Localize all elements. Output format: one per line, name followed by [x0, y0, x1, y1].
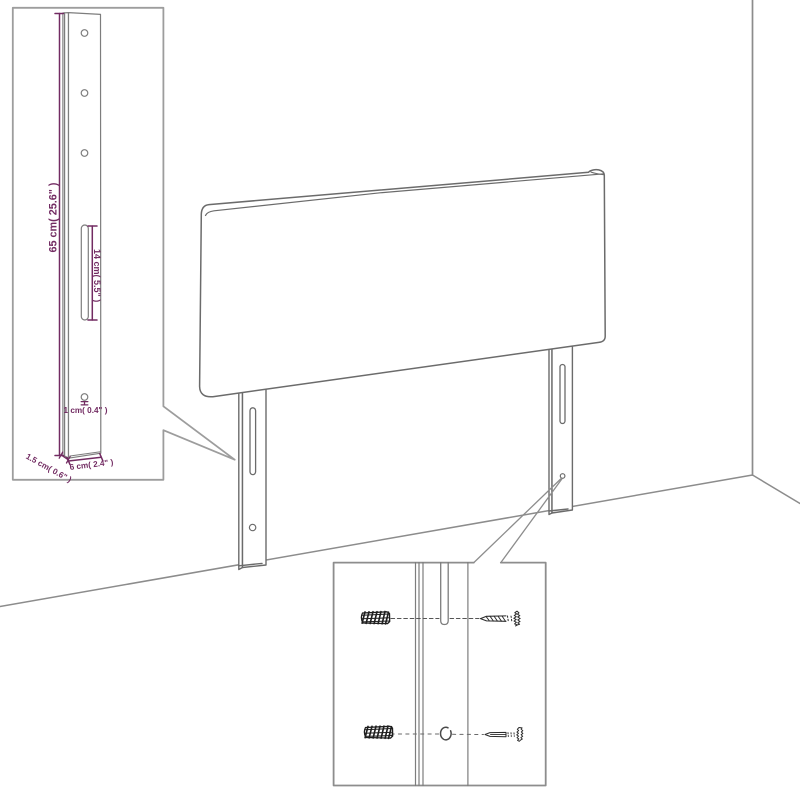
svg-text:14 cm( 5.5" ): 14 cm( 5.5" ): [92, 249, 102, 302]
svg-text:1 cm( 0.4" ): 1 cm( 0.4" ): [64, 406, 108, 415]
svg-text:65 cm( 25.6" ): 65 cm( 25.6" ): [48, 182, 60, 252]
